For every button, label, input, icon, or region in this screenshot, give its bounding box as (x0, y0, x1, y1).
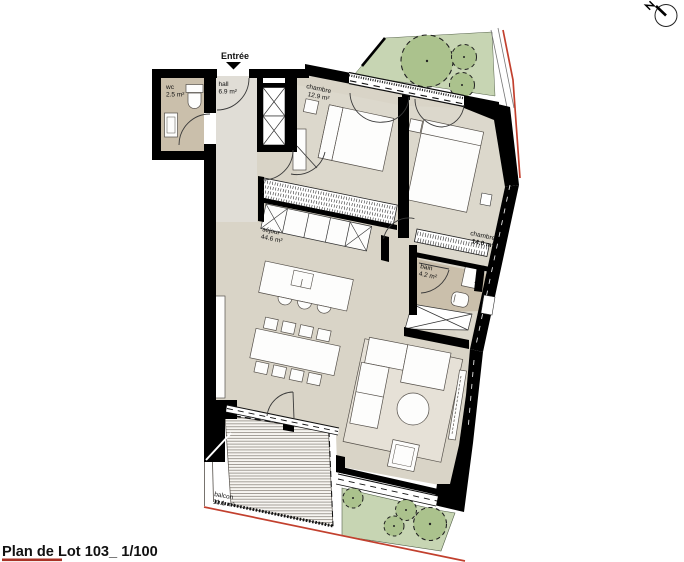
svg-text:Entrée: Entrée (221, 51, 249, 61)
svg-text:6.9 m²: 6.9 m² (219, 89, 238, 96)
svg-text:wc: wc (165, 84, 175, 91)
svg-text:Plan de Lot 103_ 1/100: Plan de Lot 103_ 1/100 (2, 544, 158, 560)
svg-text:2.5 m²: 2.5 m² (166, 92, 185, 99)
svg-text:hall: hall (219, 81, 230, 88)
